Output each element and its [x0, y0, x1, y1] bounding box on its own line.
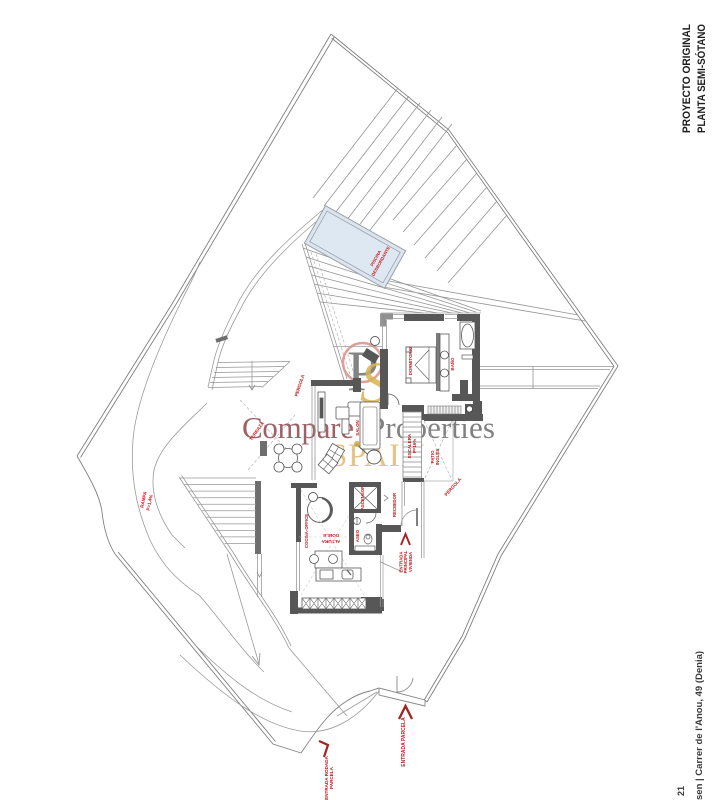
svg-text:COCINA-OFFICE: COCINA-OFFICE [304, 514, 309, 548]
svg-text:VIVIENDA: VIVIENDA [408, 552, 413, 572]
svg-text:DORMITORIO: DORMITORIO [408, 346, 413, 375]
svg-text:ASCENSOR: ASCENSOR [360, 485, 365, 510]
svg-text:INGLÉS: INGLÉS [435, 449, 440, 465]
svg-text:SALON: SALON [355, 420, 360, 435]
svg-text:sen | Carrer de l'Anou, 49 (De: sen | Carrer de l'Anou, 49 (Denia) [694, 651, 705, 800]
svg-text:P=16%: P=16% [412, 439, 417, 453]
svg-text:21: 21 [676, 786, 686, 796]
svg-text:ASEO: ASEO [355, 529, 360, 542]
svg-text:PERGOLA: PERGOLA [294, 373, 306, 397]
svg-text:BAÑO: BAÑO [450, 357, 455, 371]
svg-text:PARCELA: PARCELA [329, 766, 334, 789]
svg-text:PLANTA SEMI-SÓTANO: PLANTA SEMI-SÓTANO [695, 24, 708, 133]
svg-text:RECIBIDOR: RECIBIDOR [392, 492, 397, 517]
svg-text:PROYECTO ORIGINAL: PROYECTO ORIGINAL [681, 24, 693, 133]
svg-text:ENTRADA PARCELA: ENTRADA PARCELA [401, 717, 407, 767]
